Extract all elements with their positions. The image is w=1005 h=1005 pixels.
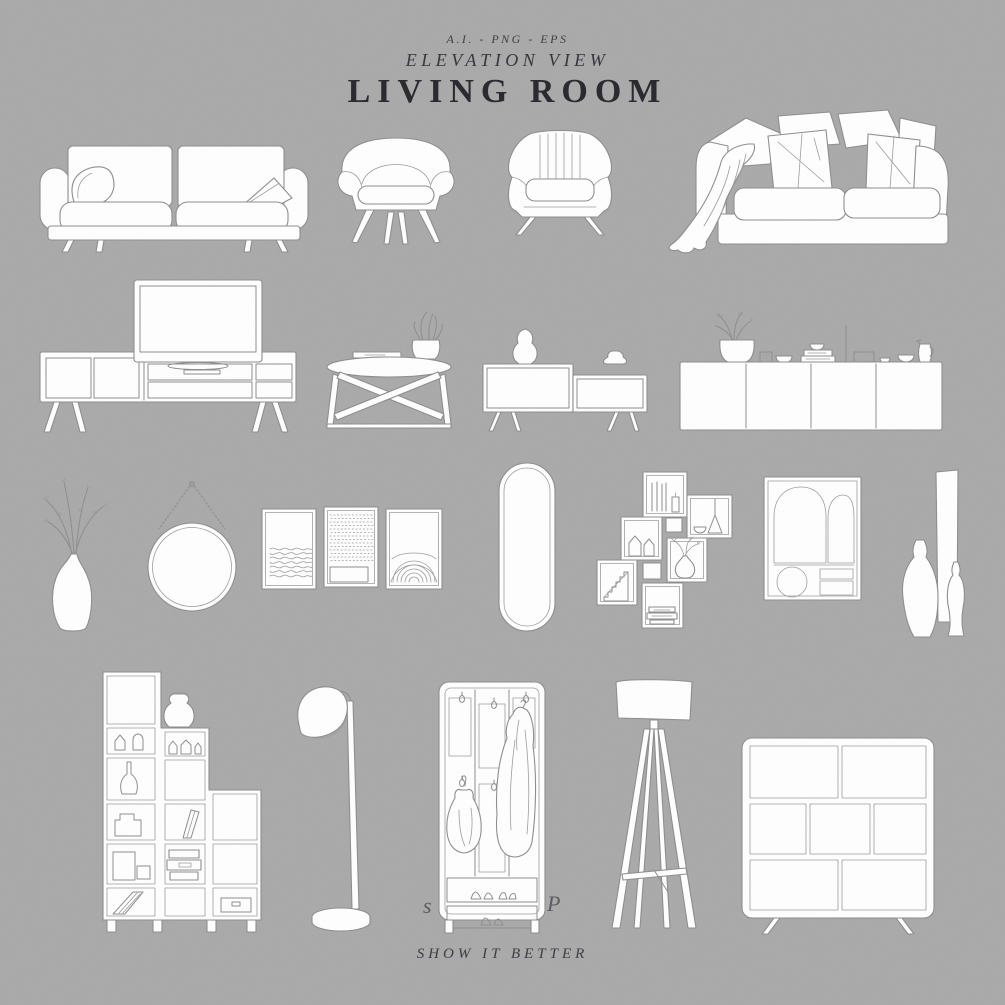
abstract-frame-illustration xyxy=(764,477,861,600)
poster-canvas: A.I. - PNG - EPS ELEVATION VIEW LIVING R… xyxy=(0,0,1005,1005)
page-title: LIVING ROOM xyxy=(10,73,1005,111)
long-sideboard-illustration xyxy=(680,310,945,432)
cube-shelf-illustration xyxy=(596,471,733,631)
low-cabinet-illustration xyxy=(742,738,938,934)
brand-name: SHOW IT BETTER xyxy=(0,946,1005,963)
tripod-lamp-illustration xyxy=(610,678,698,932)
watermark-fragment-right: P xyxy=(547,891,560,917)
header: A.I. - PNG - EPS ELEVATION VIEW LIVING R… xyxy=(10,32,1005,111)
channel-armchair-illustration xyxy=(502,121,618,235)
two-tier-sideboard-illustration xyxy=(483,329,647,431)
vase-branches-illustration xyxy=(38,470,113,632)
coffee-table-illustration xyxy=(325,310,455,432)
tv-stand-illustration xyxy=(38,280,300,434)
subtitle: ELEVATION VIEW xyxy=(10,50,1005,71)
stepped-bookshelf-illustration xyxy=(101,670,263,932)
watermark-fragment-left: s xyxy=(423,893,432,919)
file-formats-line: A.I. - PNG - EPS xyxy=(10,32,1005,47)
footer: SHOW IT BETTER xyxy=(0,946,1005,963)
dome-floor-lamp-illustration xyxy=(293,683,371,933)
vases-group-illustration xyxy=(900,470,968,638)
slipcover-sofa-illustration xyxy=(648,102,952,250)
three-seat-sofa-illustration xyxy=(38,140,310,252)
gallery-frames-illustration xyxy=(262,507,442,591)
accent-armchair-illustration xyxy=(330,132,462,246)
oval-mirror-illustration xyxy=(497,461,557,633)
round-mirror-illustration xyxy=(146,480,238,612)
coat-rack-illustration xyxy=(437,680,547,933)
